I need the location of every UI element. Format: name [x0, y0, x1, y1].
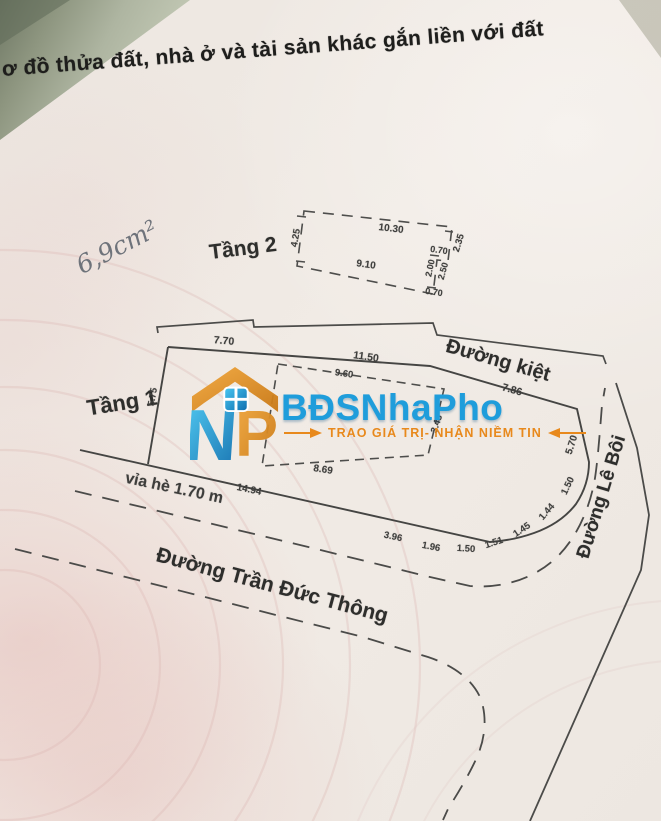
photo-of-land-plot-document: ơ đồ thửa đất, nhà ở và tài sản khác gắn… [0, 0, 661, 821]
watermark-brand-text: BĐSNhaPho [281, 387, 503, 429]
left-arrow-icon [284, 428, 322, 438]
right-arrow-icon [548, 428, 586, 438]
watermark-tagline-text: TRAO GIÁ TRỊ- NHẬN NIỀM TIN [328, 426, 542, 440]
house-logo-icon: N P [190, 364, 280, 469]
corner-segment-label: 1.50 [456, 543, 475, 555]
watermark-tagline: TRAO GIÁ TRỊ- NHẬN NIỀM TIN [284, 426, 586, 440]
right-outer-edge-line [530, 383, 649, 821]
floor1-dim-top-left: 7.70 [213, 334, 234, 348]
